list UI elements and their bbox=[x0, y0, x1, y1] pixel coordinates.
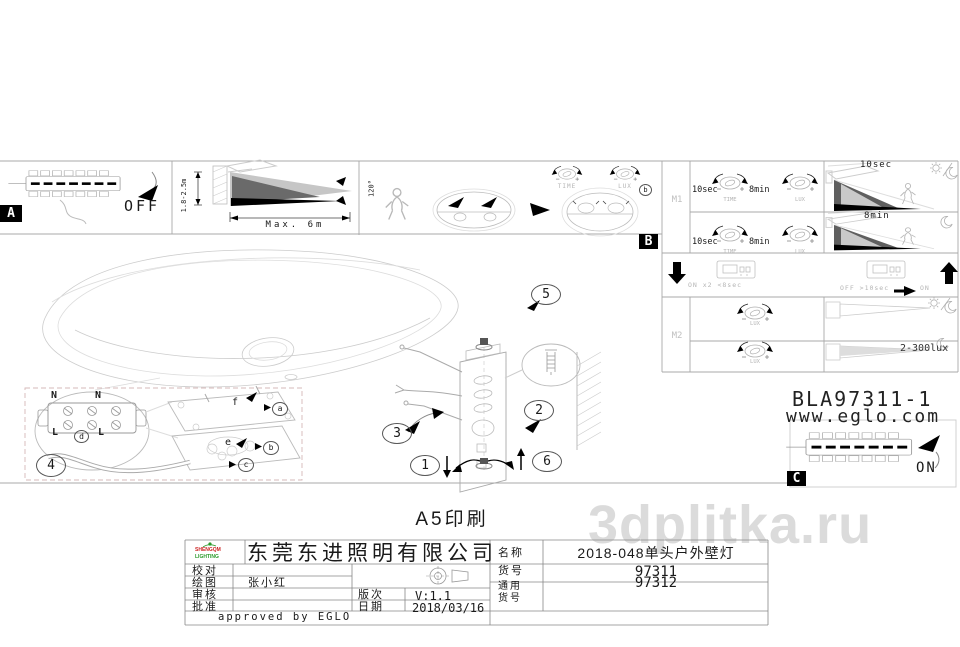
logo-text-bottom: LIGHTING bbox=[195, 555, 219, 560]
wiring-box-drawing bbox=[25, 386, 302, 480]
time-min-2: 10sec bbox=[692, 238, 718, 247]
on-label: ON bbox=[916, 461, 937, 475]
company-name: 东莞东进照明有限公司 bbox=[247, 543, 489, 564]
time-knob-label: TIME bbox=[552, 184, 582, 190]
part-e-label: e bbox=[225, 438, 231, 448]
section-a-label: A bbox=[0, 205, 22, 222]
lux-label-4: LUX bbox=[740, 360, 770, 366]
detection-angle: 120° bbox=[369, 169, 376, 209]
print-format-title: A5印刷 bbox=[372, 510, 532, 529]
terminal-l2: L bbox=[98, 428, 104, 438]
step-6: 6 bbox=[532, 451, 562, 472]
panel-c-drawing bbox=[786, 420, 956, 487]
part-c-callout: c bbox=[238, 458, 254, 472]
panel-b-drawing bbox=[433, 166, 640, 236]
beam-time-short: 10sec bbox=[860, 161, 892, 170]
date-label: 日期 bbox=[358, 602, 384, 613]
part-d-callout: d bbox=[74, 430, 89, 443]
common-item-number: 97312 bbox=[545, 576, 767, 590]
approved-by: approved by EGLO bbox=[218, 612, 351, 623]
version-label: 版次 bbox=[358, 590, 384, 601]
max-distance: Max. 6m bbox=[240, 221, 350, 230]
field-approve: 批准 bbox=[192, 602, 218, 613]
common-label-1: 通用 bbox=[498, 582, 522, 592]
lamp-drawing bbox=[43, 250, 459, 390]
part-b-callout: b bbox=[639, 184, 652, 196]
product-name: 2018-048单头户外壁灯 bbox=[545, 546, 767, 560]
lux-range: 2-300lux bbox=[900, 344, 948, 354]
mount-height: 1.8-2.5m bbox=[181, 173, 188, 218]
mode-m2-label: M2 bbox=[664, 332, 690, 341]
time-label-2: TIME bbox=[714, 250, 746, 256]
step-1: 1 bbox=[410, 455, 440, 476]
name-label: 名称 bbox=[498, 548, 524, 559]
range-diagram bbox=[194, 160, 408, 222]
terminal-n1: N bbox=[51, 391, 57, 401]
field-draw: 绘图 bbox=[192, 578, 218, 589]
logo-text-top: SHENGQM bbox=[195, 548, 221, 553]
item-label: 货号 bbox=[498, 566, 524, 577]
instruction-sheet: 3dplitka.ru bbox=[0, 0, 960, 647]
terminal-n2: N bbox=[95, 391, 101, 401]
reset-off-text: OFF >10sec bbox=[840, 285, 889, 292]
part-b-callout2: b bbox=[263, 441, 279, 455]
step-5: 5 bbox=[531, 284, 561, 305]
step-4: 4 bbox=[36, 454, 66, 477]
common-label-2: 货号 bbox=[498, 594, 522, 604]
time-max-1: 8min bbox=[749, 186, 769, 195]
mode-m1-label: M1 bbox=[664, 196, 690, 205]
lux-label-3: LUX bbox=[740, 322, 770, 328]
time-max-2: 8min bbox=[749, 238, 769, 247]
reset-strip bbox=[668, 261, 958, 296]
step-3: 3 bbox=[382, 423, 412, 444]
step-2: 2 bbox=[524, 400, 554, 421]
time-label-1: TIME bbox=[714, 198, 746, 204]
field-check: 校对 bbox=[192, 566, 218, 577]
website: www.eglo.com bbox=[786, 408, 940, 426]
reset-to-on-text: ON bbox=[920, 285, 930, 292]
projection-symbol bbox=[426, 566, 468, 586]
part-a-callout: a bbox=[272, 402, 288, 416]
beam-time-long: 8min bbox=[864, 212, 890, 221]
lux-knob-label: LUX bbox=[612, 184, 638, 190]
time-min-1: 10sec bbox=[692, 186, 718, 195]
section-b-label: B bbox=[639, 234, 658, 249]
lux-label-2: LUX bbox=[786, 250, 814, 256]
terminal-l1: L bbox=[52, 428, 58, 438]
reset-on-text: ON x2 <8sec bbox=[688, 282, 742, 289]
field-review: 审核 bbox=[192, 590, 218, 601]
drawer-name: 张小红 bbox=[248, 578, 287, 589]
section-c-label: C bbox=[787, 471, 806, 486]
lux-label-1: LUX bbox=[786, 198, 814, 204]
off-label: OFF bbox=[124, 199, 160, 214]
part-f-label: f bbox=[232, 398, 238, 408]
date-value: 2018/03/16 bbox=[412, 602, 484, 614]
